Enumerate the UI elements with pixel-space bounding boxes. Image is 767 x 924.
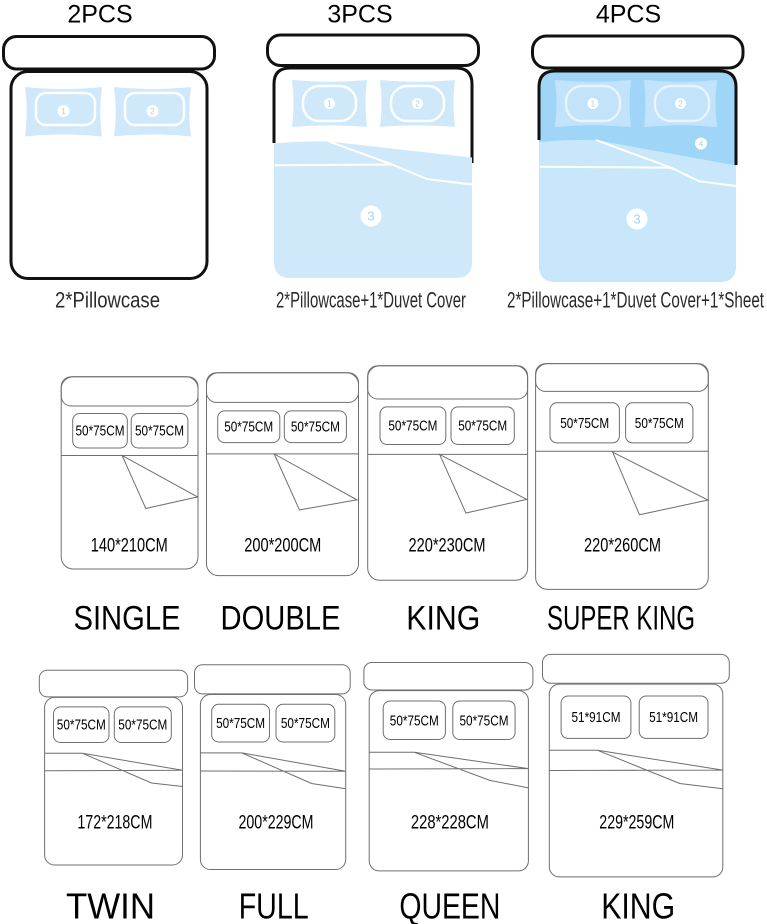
svg-text:QUEEN: QUEEN — [399, 886, 500, 924]
svg-text:3: 3 — [367, 209, 374, 224]
svg-text:50*75CM: 50*75CM — [388, 418, 437, 435]
svg-text:4PCS: 4PCS — [596, 1, 661, 29]
svg-text:200*200CM: 200*200CM — [244, 535, 321, 557]
svg-text:50*75CM: 50*75CM — [460, 713, 509, 730]
svg-text:200*229CM: 200*229CM — [239, 812, 314, 834]
svg-text:2: 2 — [150, 107, 155, 116]
svg-text:2*Pillowcase+1*Duvet Cover+1*S: 2*Pillowcase+1*Duvet Cover+1*Sheet — [507, 288, 764, 313]
svg-text:TWIN: TWIN — [66, 886, 155, 924]
svg-text:3PCS: 3PCS — [327, 1, 392, 29]
svg-text:50*75CM: 50*75CM — [57, 717, 106, 734]
svg-text:140*210CM: 140*210CM — [91, 535, 168, 557]
svg-text:KING: KING — [601, 886, 675, 924]
svg-text:DOUBLE: DOUBLE — [221, 600, 341, 638]
svg-text:50*75CM: 50*75CM — [135, 423, 184, 440]
svg-text:50*75CM: 50*75CM — [635, 415, 684, 432]
svg-text:229*259CM: 229*259CM — [599, 812, 674, 834]
svg-text:50*75CM: 50*75CM — [291, 419, 340, 436]
svg-text:2*Pillowcase+1*Duvet Cover: 2*Pillowcase+1*Duvet Cover — [276, 288, 466, 313]
svg-text:1: 1 — [61, 107, 66, 116]
svg-text:220*260CM: 220*260CM — [584, 535, 661, 557]
svg-text:2PCS: 2PCS — [67, 1, 132, 29]
svg-text:50*75CM: 50*75CM — [560, 415, 609, 432]
svg-text:2: 2 — [678, 100, 683, 109]
svg-text:FULL: FULL — [239, 886, 309, 924]
svg-text:SUPER KING: SUPER KING — [547, 600, 695, 638]
svg-text:228*228CM: 228*228CM — [411, 812, 489, 834]
svg-text:50*75CM: 50*75CM — [458, 418, 507, 435]
svg-text:220*230CM: 220*230CM — [409, 535, 486, 557]
svg-text:SINGLE: SINGLE — [74, 600, 181, 638]
svg-text:2: 2 — [415, 100, 420, 109]
svg-text:1: 1 — [327, 100, 332, 109]
svg-text:50*75CM: 50*75CM — [390, 713, 439, 730]
svg-text:172*218CM: 172*218CM — [77, 812, 152, 834]
svg-text:50*75CM: 50*75CM — [281, 715, 330, 732]
svg-text:50*75CM: 50*75CM — [216, 715, 265, 732]
svg-text:50*75CM: 50*75CM — [76, 423, 125, 440]
svg-text:50*75CM: 50*75CM — [118, 717, 167, 734]
svg-text:4: 4 — [699, 140, 704, 149]
svg-text:KING: KING — [406, 600, 480, 638]
svg-text:1: 1 — [591, 100, 596, 109]
svg-text:50*75CM: 50*75CM — [224, 419, 273, 436]
svg-text:2*Pillowcase: 2*Pillowcase — [55, 288, 160, 313]
svg-text:51*91CM: 51*91CM — [649, 709, 698, 726]
svg-text:51*91CM: 51*91CM — [572, 709, 621, 726]
svg-text:3: 3 — [633, 212, 640, 227]
